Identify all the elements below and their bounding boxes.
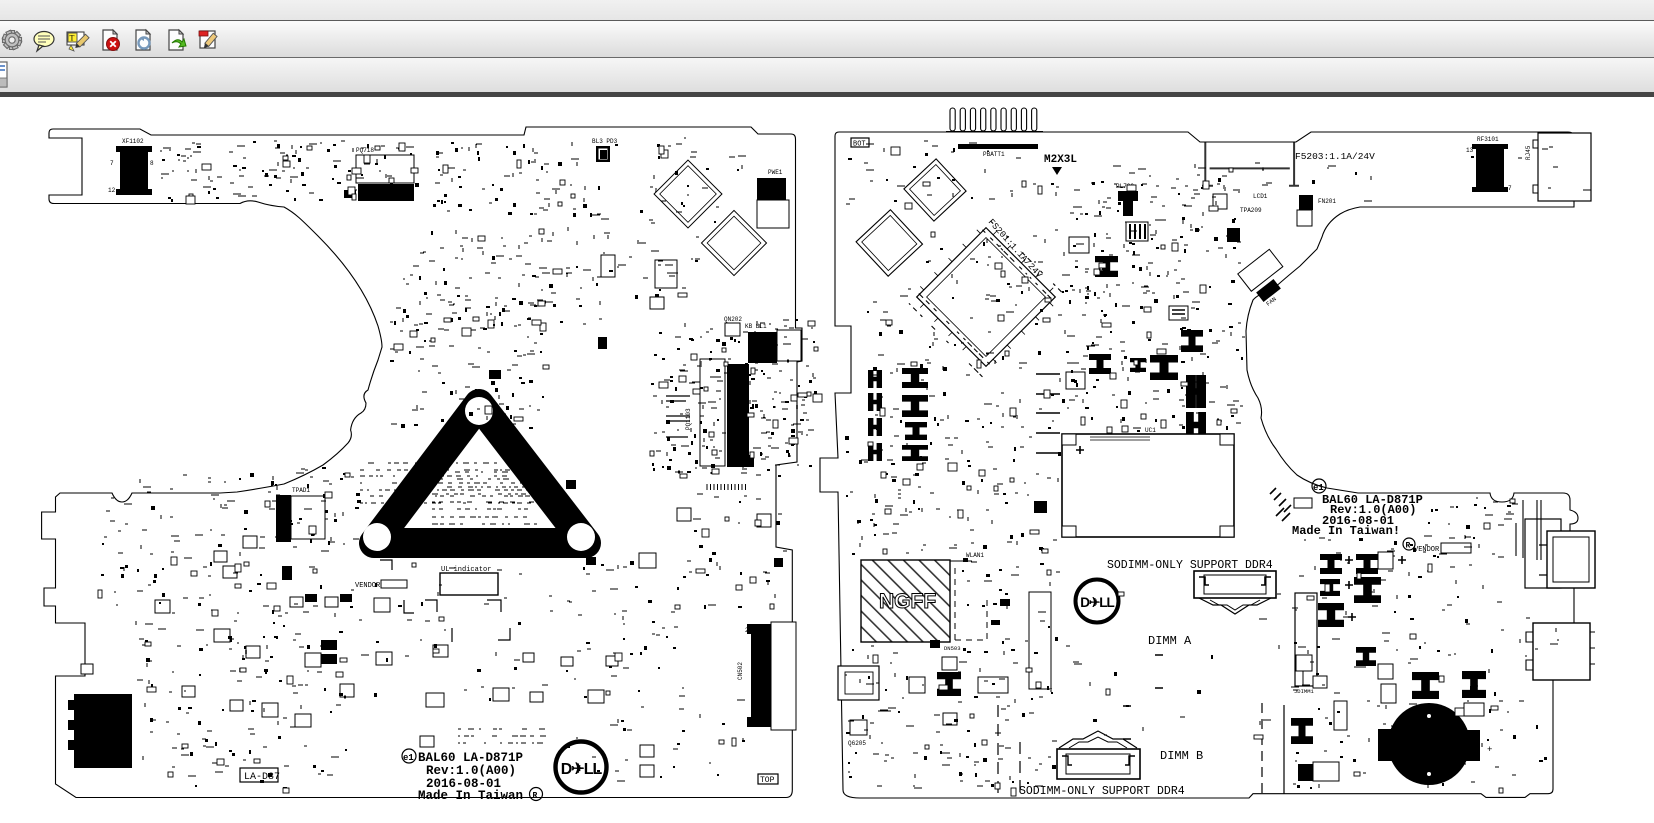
svg-text:DIMM A: DIMM A	[1148, 634, 1192, 648]
svg-text:8: 8	[150, 160, 154, 167]
svg-text:RJ45: RJ45	[1525, 145, 1532, 160]
svg-text:+: +	[1487, 745, 1492, 755]
svg-text:BL3 PD3: BL3 PD3	[592, 138, 618, 145]
svg-text:PBATT1: PBATT1	[983, 151, 1005, 158]
svg-text:24: 24	[745, 627, 753, 634]
svg-text:D✈LL: D✈LL	[561, 761, 603, 778]
svg-text:13: 13	[1466, 147, 1474, 154]
svg-text:PWE1: PWE1	[768, 169, 783, 176]
svg-text:LCD1: LCD1	[1253, 193, 1268, 200]
svg-text:TPA209: TPA209	[1240, 207, 1262, 214]
svg-text:WLAN1: WLAN1	[966, 552, 984, 559]
svg-text:CN502: CN502	[737, 662, 744, 680]
svg-text:QN202: QN202	[724, 316, 742, 323]
svg-text:e1: e1	[1313, 483, 1324, 493]
svg-text:F5203:1.1A/24V: F5203:1.1A/24V	[1295, 151, 1375, 162]
svg-text:SODIMM-ONLY SUPPORT DDR4: SODIMM-ONLY SUPPORT DDR4	[1107, 559, 1273, 572]
svg-text:TOP: TOP	[760, 776, 775, 785]
svg-text:R: R	[1406, 542, 1411, 551]
svg-text:Q6205: Q6205	[848, 740, 866, 747]
svg-text:e1: e1	[403, 753, 414, 763]
svg-text:T: T	[70, 34, 75, 43]
svg-text:VENDOR:: VENDOR:	[355, 582, 384, 590]
svg-text:TPAD1: TPAD1	[292, 487, 310, 494]
svg-text:7: 7	[1508, 185, 1512, 192]
svg-text:BOT: BOT	[853, 141, 866, 149]
svg-text:VENDOR: VENDOR	[1414, 546, 1440, 554]
svg-text:Made In Taiwan!: Made In Taiwan!	[1292, 524, 1400, 538]
svg-text:DN503: DN503	[944, 645, 961, 652]
svg-text:JDIMM1: JDIMM1	[1294, 688, 1315, 695]
svg-text:Rev:1.0(A00): Rev:1.0(A00)	[426, 764, 516, 778]
svg-text:XF1102: XF1102	[122, 138, 144, 145]
svg-text:Made In Taiwan: Made In Taiwan	[418, 789, 523, 803]
svg-text:PQ718: PQ718	[356, 147, 374, 154]
svg-text:R: R	[533, 792, 538, 801]
svg-text:D✈LL: D✈LL	[1080, 595, 1114, 610]
svg-text:PQ1103: PQ1103	[685, 408, 692, 430]
svg-text:UC1: UC1	[1145, 427, 1156, 434]
svg-text:DIMM B: DIMM B	[1160, 749, 1203, 763]
svg-text:NGFF: NGFF	[879, 590, 936, 613]
svg-text:7: 7	[110, 160, 114, 167]
svg-text:FN201: FN201	[1318, 198, 1336, 205]
svg-text:RF3101: RF3101	[1477, 136, 1499, 143]
svg-text:12: 12	[108, 187, 116, 194]
svg-text:M2X3L: M2X3L	[1044, 154, 1077, 166]
svg-text:BAL60 LA-D871P: BAL60 LA-D871P	[418, 751, 523, 765]
svg-text:SODIMM-ONLY SUPPORT DDR4: SODIMM-ONLY SUPPORT DDR4	[1019, 785, 1185, 798]
